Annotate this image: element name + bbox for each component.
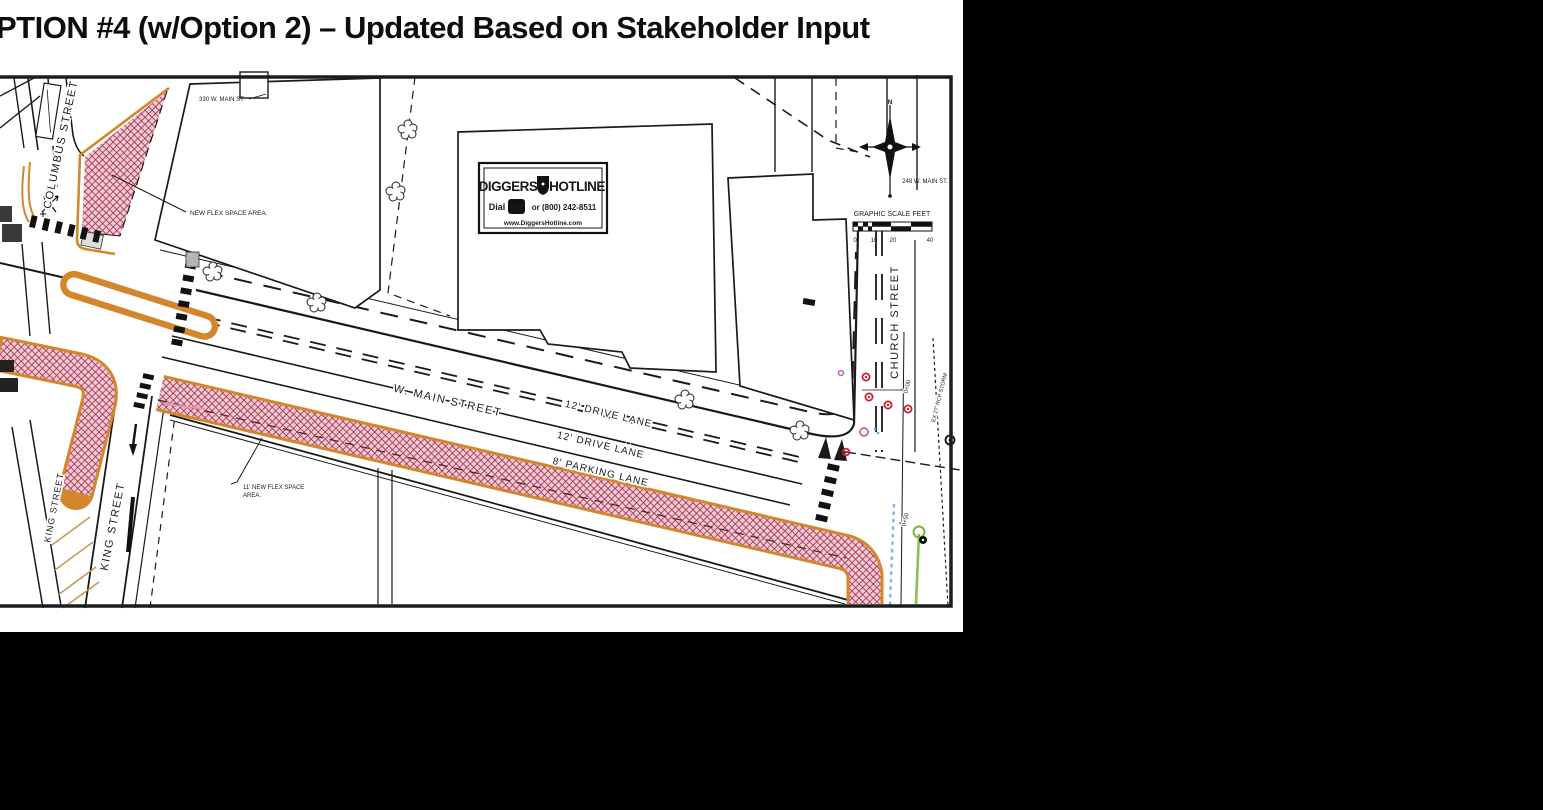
label-drive-lane-2: 12' DRIVE LANE (556, 430, 645, 461)
diggers-hotline-badge: DIGGERS HOTLINE Dial 811 or (800) 242-85… (479, 163, 607, 233)
label-storm: EX 27' RCP STORM (931, 372, 949, 423)
site-plan-drawing: COLUMBUS STREET W. MAIN STREET KING STRE… (0, 0, 963, 632)
north-label: N (888, 99, 893, 106)
label-w-main-street: W. MAIN STREET (392, 383, 503, 420)
hotline-dial: Dial (489, 202, 506, 212)
one-way-arrow-icon (129, 424, 137, 456)
scale-10: 10 (871, 238, 878, 244)
label-248-w-main: 248 W. MAIN ST. (902, 179, 948, 185)
label-flex11-line2: AREA. (243, 493, 261, 499)
scale-title: GRAPHIC SCALE FEET (854, 211, 931, 218)
label-flex11-line1: 11' NEW FLEX SPACE (243, 485, 304, 491)
label-station-50: 0+50 (901, 512, 910, 527)
water-line (890, 505, 894, 604)
flex-area-columbus (82, 91, 167, 236)
label-drive-lane-1: 12' DRIVE LANE (564, 399, 653, 430)
hotline-brand-right: HOTLINE (549, 179, 605, 194)
label-king-street: KING STREET (99, 481, 128, 571)
hotline-phone: or (800) 242-8511 (532, 203, 597, 212)
slide-canvas: PTION #4 (w/Option 2) – Updated Based on… (0, 0, 1543, 810)
curb-ramp-icon (818, 437, 847, 461)
building-330 (155, 78, 380, 308)
label-330-w-main: 330 W. MAIN ST. (199, 97, 245, 103)
hotline-811: 811 (510, 203, 522, 212)
building-middle (458, 124, 716, 372)
label-king-street-west: KING STREET (42, 472, 65, 544)
median-island (61, 271, 218, 339)
label-church-street: CHURCH STREET (889, 265, 901, 379)
slide-title: PTION #4 (w/Option 2) – Updated Based on… (0, 10, 956, 46)
label-station-0: 0+00 (903, 379, 912, 394)
hotline-web: www.DiggersHotline.com (503, 220, 582, 227)
building-right (728, 174, 854, 420)
scale-40: 40 (927, 238, 934, 244)
scale-20: 20 (890, 238, 897, 244)
plan-sheet: PTION #4 (w/Option 2) – Updated Based on… (0, 0, 963, 632)
graphic-scale: GRAPHIC SCALE FEET 0 10 20 40 (853, 211, 934, 244)
sewer-line (916, 534, 919, 604)
hotline-brand-left: DIGGERS (479, 179, 538, 194)
label-new-flex-area: NEW FLEX SPACE AREA. (190, 210, 268, 217)
